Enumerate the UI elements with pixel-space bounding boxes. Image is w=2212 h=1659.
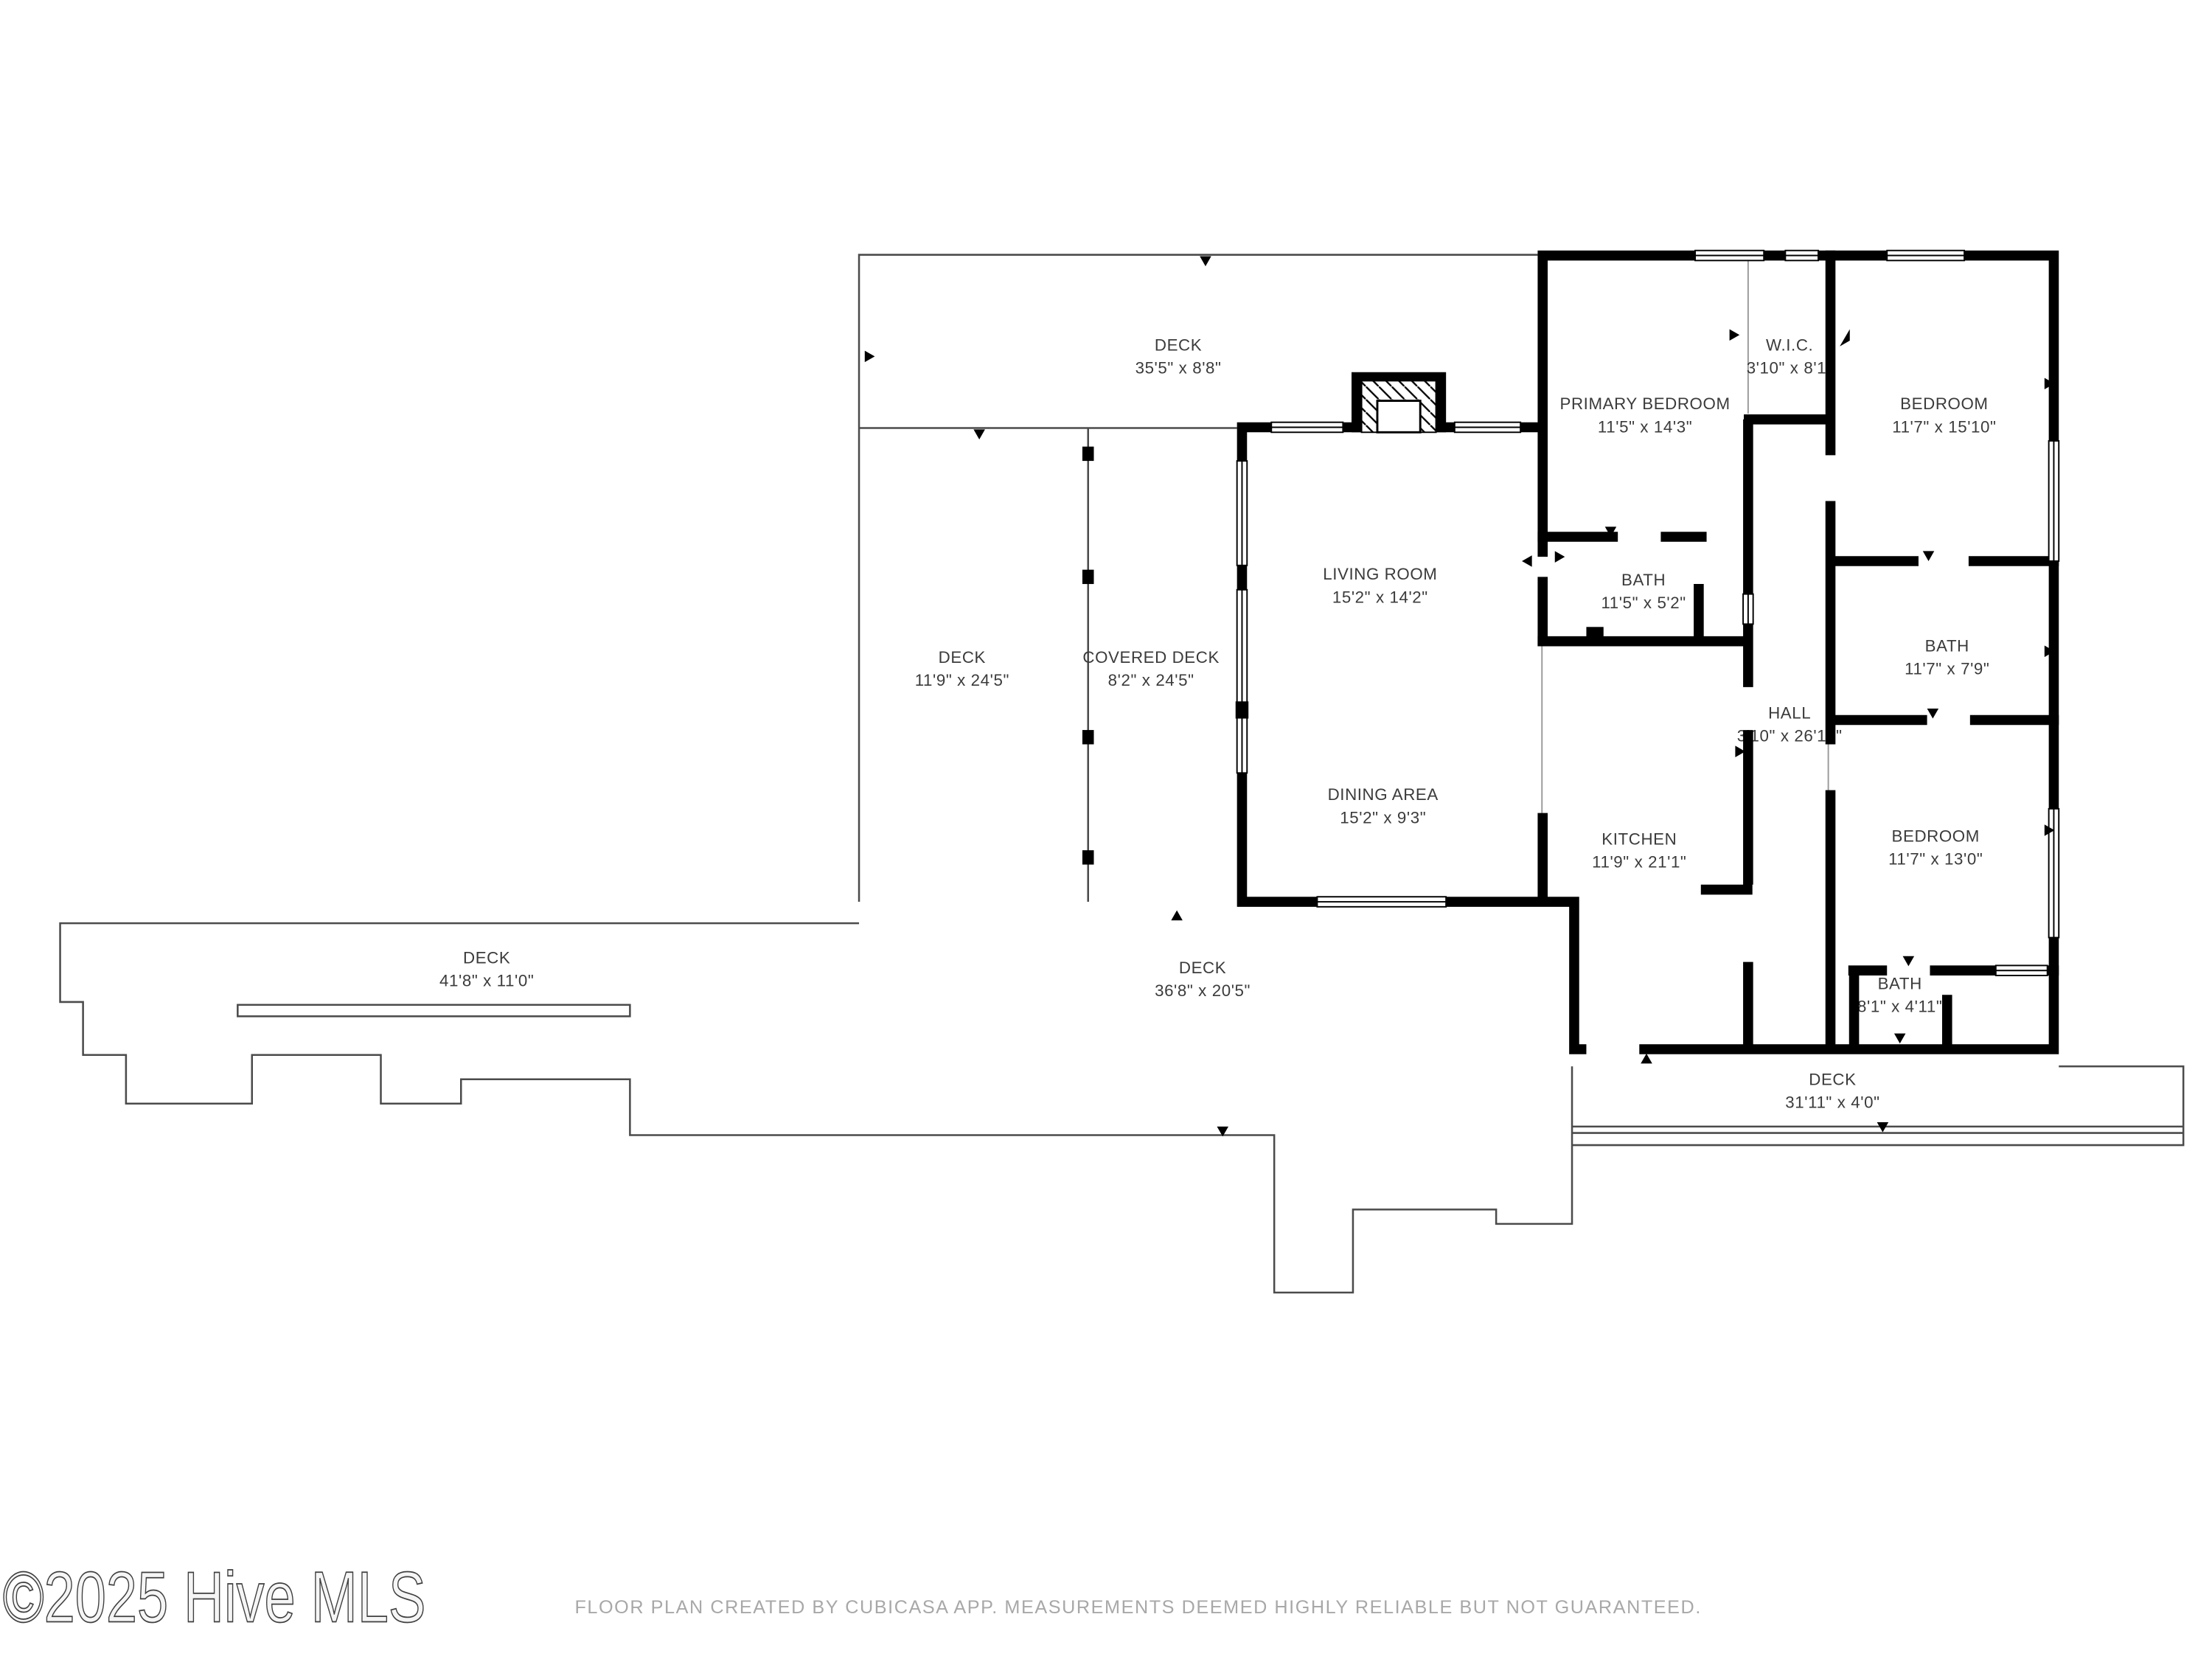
deck-top-dims: 35'5" x 8'8" [1135, 359, 1222, 378]
primary-bedroom-label: PRIMARY BEDROOM [1560, 394, 1731, 413]
deck-post [1082, 447, 1094, 461]
deck-bottom-outline [60, 923, 1572, 1293]
marker-triangle [1730, 330, 1740, 341]
covered-deck-label: COVERED DECK [1082, 648, 1220, 667]
marker-triangle [1522, 555, 1532, 567]
wic-dims: 3'10" x 8'1" [1747, 359, 1833, 378]
deck-post [1082, 850, 1094, 864]
deck-south-dims: 36'8" x 20'5" [1155, 981, 1251, 1000]
deck-southwest-dims: 41'8" x 11'0" [439, 972, 534, 990]
bedroom-ne-dims: 11'7" x 15'10" [1892, 417, 1996, 436]
bath-primary-dims: 11'5" x 5'2" [1601, 594, 1686, 612]
kitchen-label: KITCHEN [1601, 829, 1677, 848]
fireplace-firebox [1377, 401, 1420, 433]
living-room-label: LIVING ROOM [1323, 565, 1437, 583]
deck-outlines [60, 255, 2184, 1293]
deck-bench [237, 1005, 630, 1017]
deck-west-dims: 11'9" x 24'5" [915, 671, 1009, 689]
watermark-text: ©2025 Hive MLS [3, 1558, 426, 1638]
marker-triangle [865, 351, 875, 363]
living-room-dims: 15'2" x 14'2" [1332, 588, 1428, 606]
primary-bedroom-dims: 11'5" x 14'3" [1598, 417, 1692, 436]
room-labels: DECK 35'5" x 8'8" PRIMARY BEDROOM 11'5" … [439, 336, 1997, 1112]
bedroom-se-label: BEDROOM [1892, 827, 1980, 846]
marker-triangle [1641, 1054, 1652, 1064]
deck-southeast-dims: 31'11" x 4'0" [1785, 1093, 1879, 1112]
marker-triangle [1171, 911, 1183, 921]
open-boundary-lines [1542, 260, 1828, 899]
bath-fixture-stub [1586, 627, 1603, 641]
marker-triangle [1927, 709, 1939, 719]
deck-southwest-label: DECK [463, 949, 510, 967]
marker-triangle [1894, 1034, 1906, 1044]
marker-triangle [1840, 330, 1850, 347]
floor-plan-canvas: DECK 35'5" x 8'8" PRIMARY BEDROOM 11'5" … [0, 0, 2212, 1659]
marker-triangle [1200, 256, 1211, 266]
marker-triangle [1555, 551, 1565, 563]
bath-east-label: BATH [1925, 636, 1969, 655]
deck-post [1082, 730, 1094, 744]
dining-area-label: DINING AREA [1328, 785, 1439, 804]
marker-triangle [973, 429, 985, 439]
deck-south-label: DECK [1179, 959, 1226, 977]
deck-post [1082, 570, 1094, 584]
deck-top-label: DECK [1155, 336, 1202, 355]
kitchen-dims: 11'9" x 21'1" [1592, 852, 1686, 871]
marker-triangle [1923, 551, 1935, 561]
hall-label: HALL [1768, 704, 1811, 723]
dining-area-dims: 15'2" x 9'3" [1340, 808, 1426, 827]
deck-west-label: DECK [939, 648, 986, 667]
covered-deck-dims: 8'2" x 24'5" [1108, 671, 1194, 689]
bath-primary-label: BATH [1621, 571, 1666, 589]
bath-east-dims: 11'7" x 7'9" [1905, 659, 1989, 678]
bath-small-dims: 8'1" x 4'11" [1857, 998, 1942, 1016]
marker-triangle [1903, 956, 1915, 967]
deck-post [1236, 701, 1248, 718]
disclaimer-text: FLOOR PLAN CREATED BY CUBICASA APP. MEAS… [574, 1597, 1701, 1618]
bedroom-se-dims: 11'7" x 13'0" [1888, 850, 1983, 869]
fireplace [1352, 372, 1446, 433]
wic-label: W.I.C. [1766, 336, 1813, 355]
bath-small-label: BATH [1878, 974, 1922, 992]
deck-southeast-label: DECK [1809, 1071, 1856, 1089]
bedroom-ne-label: BEDROOM [1900, 394, 1988, 413]
